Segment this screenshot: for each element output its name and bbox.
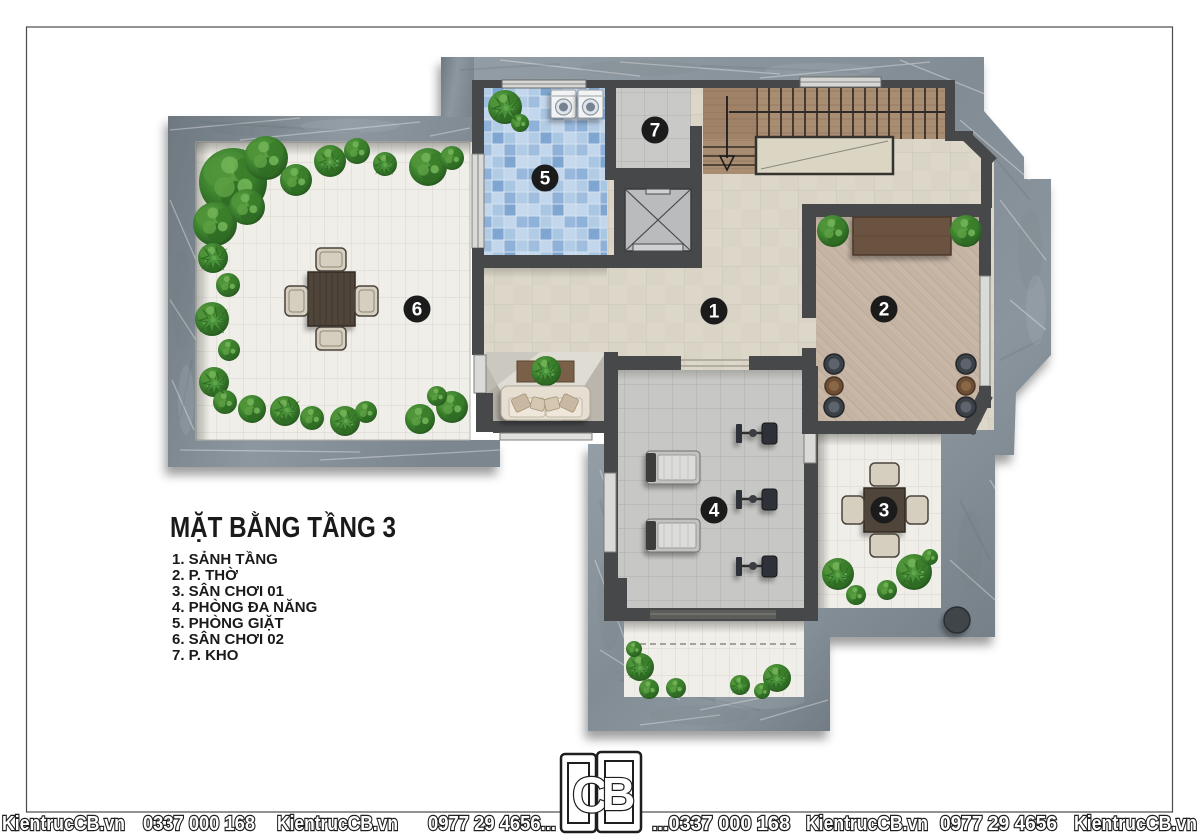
svg-text:1. SẢNH TẦNG: 1. SẢNH TẦNG (172, 551, 278, 568)
svg-text:4. PHÒNG ĐA NĂNG: 4. PHÒNG ĐA NĂNG (172, 598, 317, 616)
svg-text:...0337 000 168: ...0337 000 168 (652, 813, 790, 835)
svg-text:7. P. KHO: 7. P. KHO (172, 647, 239, 664)
svg-text:5. PHÒNG GIẶT: 5. PHÒNG GIẶT (172, 614, 284, 632)
svg-text:3. SÂN CHƠI 01: 3. SÂN CHƠI 01 (172, 582, 284, 600)
svg-text:2: 2 (879, 300, 890, 321)
svg-text:3: 3 (879, 501, 890, 522)
svg-text:KientrucCB.vn: KientrucCB.vn (1074, 813, 1197, 835)
svg-text:KientrucCB.vn: KientrucCB.vn (806, 813, 928, 835)
svg-text:0337 000 168: 0337 000 168 (143, 813, 255, 835)
svg-text:0977 29 4656...: 0977 29 4656... (428, 813, 556, 835)
svg-text:5: 5 (540, 169, 551, 190)
svg-text:0977 29 4656: 0977 29 4656 (940, 813, 1057, 835)
svg-text:1: 1 (709, 302, 720, 323)
svg-text:6: 6 (412, 300, 423, 321)
svg-text:7: 7 (650, 121, 661, 142)
svg-text:KientrucCB.vn: KientrucCB.vn (2, 813, 125, 835)
svg-text:MẶT BẰNG TẦNG 3: MẶT BẰNG TẦNG 3 (170, 510, 396, 544)
svg-text:2. P. THỜ: 2. P. THỜ (172, 566, 238, 584)
svg-text:KientrucCB.vn: KientrucCB.vn (277, 813, 398, 835)
svg-text:6. SÂN CHƠI 02: 6. SÂN CHƠI 02 (172, 630, 284, 648)
svg-text:4: 4 (709, 501, 720, 522)
svg-text:B: B (602, 768, 635, 820)
